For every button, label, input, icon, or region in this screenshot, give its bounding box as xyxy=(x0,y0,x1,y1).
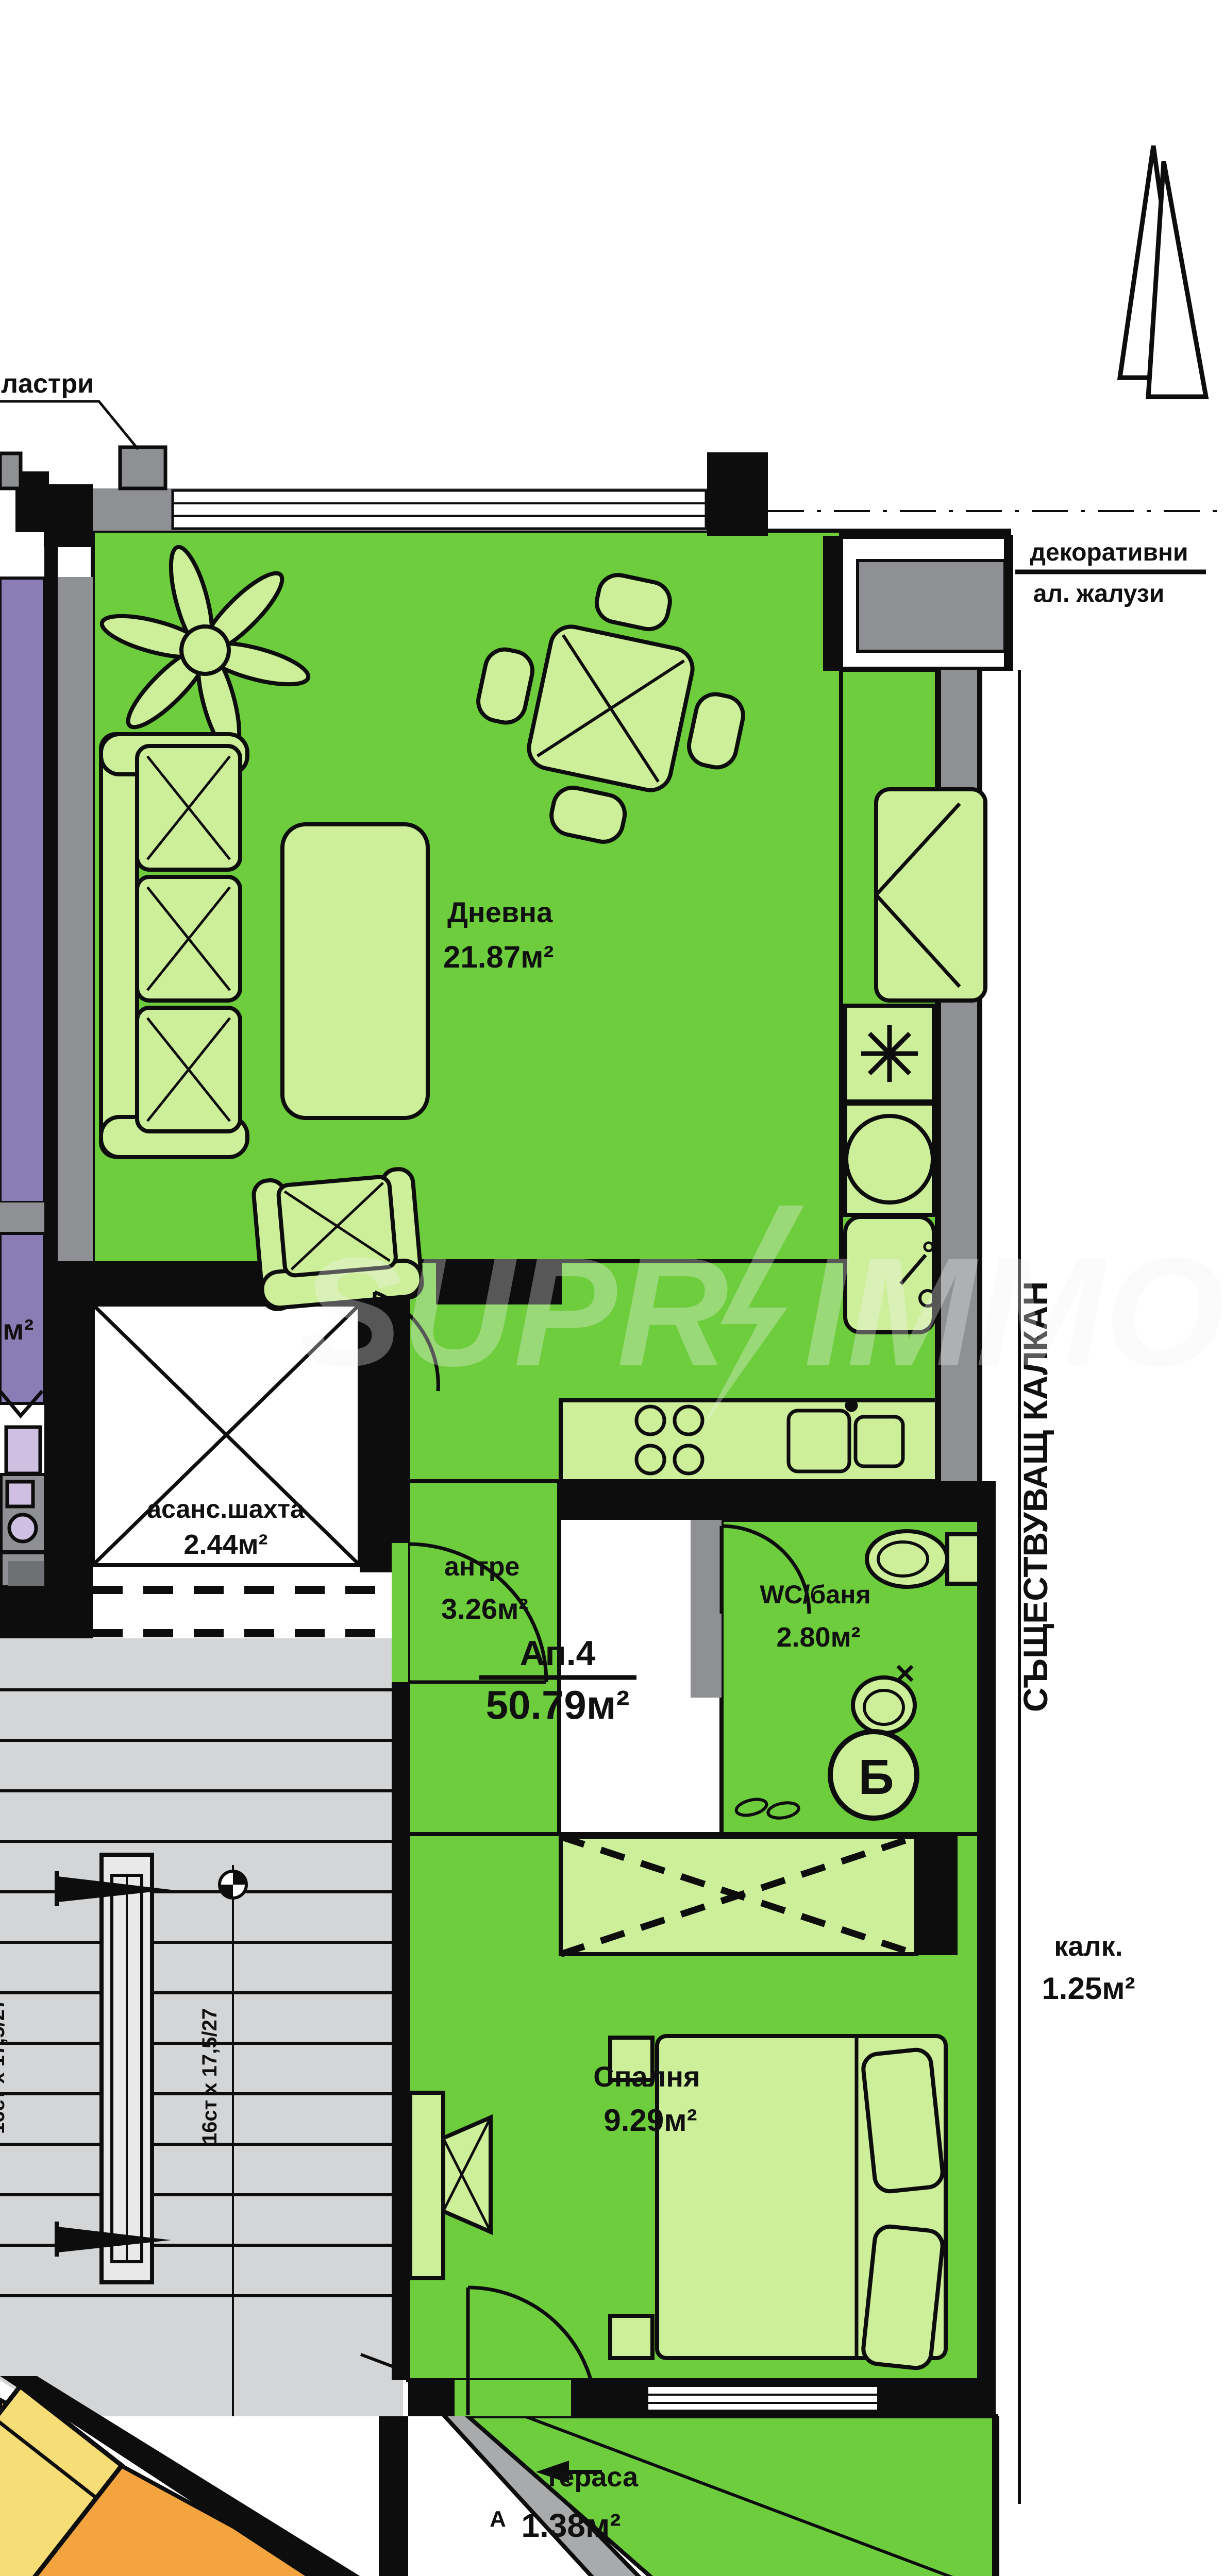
top-wall: ластри xyxy=(0,369,768,547)
sofa xyxy=(101,734,247,1157)
bedroom-area: 9.29м² xyxy=(603,2103,697,2138)
pilaster-block xyxy=(0,453,21,488)
louvers-label-2: ал. жалузи xyxy=(1033,580,1164,607)
neighbor-area-label: 2м² xyxy=(0,1313,33,1346)
apartment-area: 50.79м² xyxy=(486,1682,630,1727)
stairs-note-left: 16ст x 17,5/27 xyxy=(0,1998,9,2134)
elevator-name: асанс.шахта xyxy=(147,1495,305,1523)
pilaster-block xyxy=(120,447,165,488)
nightstand xyxy=(610,2316,652,2358)
kitchen-counter xyxy=(561,1400,937,1481)
neighbor-fixtures xyxy=(1,1427,45,1587)
living-area: 21.87м² xyxy=(443,940,554,974)
wall-stair-right xyxy=(379,2416,408,2576)
window-band xyxy=(173,490,706,529)
coffee-table xyxy=(282,824,428,1118)
stair-handrail xyxy=(102,1855,152,2282)
wc-area: 2.80м² xyxy=(776,1622,860,1653)
toilet-icon xyxy=(867,1531,979,1587)
kalkan-area: 1.25м² xyxy=(1042,1971,1135,2006)
washing-machine-icon xyxy=(845,1104,934,1215)
spire-icon xyxy=(1120,146,1206,397)
apartment-id: Ап.4 xyxy=(520,1634,596,1673)
pilasters-leader xyxy=(0,401,138,449)
wc-name: WC/баня xyxy=(760,1580,870,1609)
bedroom-name: Спалня xyxy=(593,2060,700,2093)
louvers-label-1: декоративни xyxy=(1030,539,1188,566)
bath-marker-bubble: Б xyxy=(830,1732,917,1818)
stairs-note-right: 16ст x 17,5/27 xyxy=(198,2008,221,2144)
watermark-part1: SUPR xyxy=(299,1225,729,1398)
stairwell: 16ст x 17,5/27 16ст x 17,5/27 xyxy=(0,1638,403,2416)
elevator-area: 2.44м² xyxy=(183,1529,267,1560)
svg-text:А: А xyxy=(490,2506,506,2532)
terrace-area: 1.38м² xyxy=(521,2507,621,2544)
axis-bubble-icon xyxy=(220,1871,246,1898)
living-name: Дневна xyxy=(447,896,553,928)
pillow xyxy=(862,2048,944,2193)
floor-plan: 16ст x 17,5/27 16ст x 17,5/27 А тераса 1… xyxy=(0,0,1224,2576)
terrace-name: тераса xyxy=(545,2462,639,2493)
bath-marker: Б xyxy=(859,1750,894,1805)
watermark-part2: IMMO xyxy=(804,1225,1224,1398)
pillow xyxy=(862,2225,944,2369)
kalkan-label: калк. xyxy=(1054,1931,1122,1962)
hall-area: 3.26м² xyxy=(441,1592,528,1625)
wardrobe xyxy=(561,1837,916,1954)
pilasters-label: ластри xyxy=(1,369,94,399)
party-wall: СЪЩЕСТВУВАЩ КАЛКАН калк. 1.25м² xyxy=(1016,670,1135,2504)
tv-closet xyxy=(876,789,985,1001)
hall-name: антре xyxy=(444,1552,519,1582)
